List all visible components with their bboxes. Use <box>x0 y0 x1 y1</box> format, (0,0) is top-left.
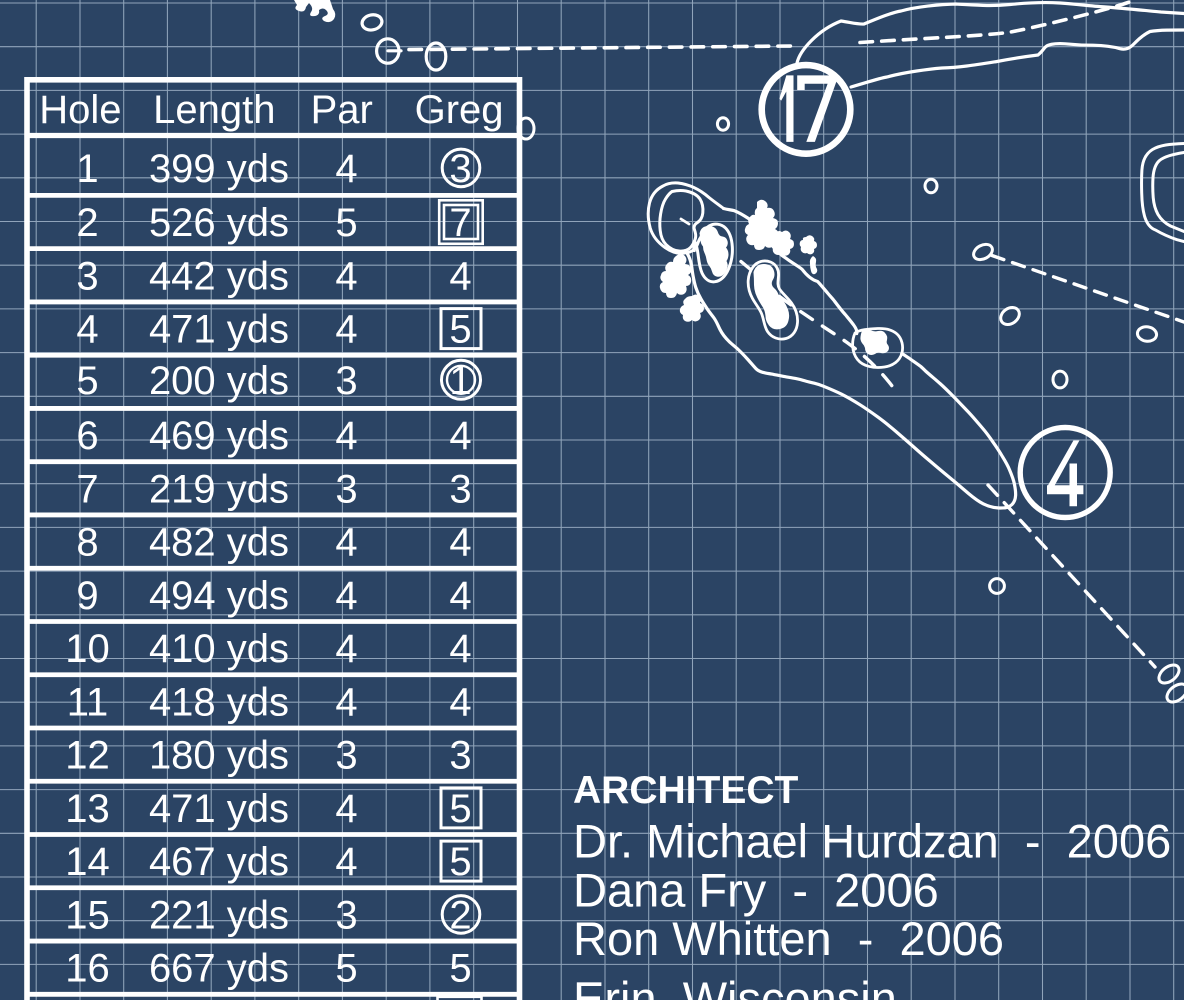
svg-text:5: 5 <box>449 308 471 352</box>
svg-text:Dr. Michael Hurdzan - 2006: Dr. Michael Hurdzan - 2006 <box>573 815 1171 868</box>
svg-text:4: 4 <box>335 574 357 618</box>
svg-text:Length: Length <box>153 88 275 132</box>
svg-text:219 yds: 219 yds <box>149 467 289 511</box>
svg-text:4: 4 <box>335 787 357 831</box>
svg-text:4: 4 <box>449 680 471 724</box>
svg-text:ARCHITECT: ARCHITECT <box>573 769 798 812</box>
svg-text:3: 3 <box>449 467 471 511</box>
svg-text:482 yds: 482 yds <box>149 521 289 565</box>
svg-text:3: 3 <box>335 359 357 403</box>
svg-text:526 yds: 526 yds <box>149 201 289 245</box>
svg-text:410 yds: 410 yds <box>149 627 289 671</box>
svg-text:4: 4 <box>335 840 357 884</box>
svg-text:2: 2 <box>76 201 98 245</box>
svg-text:442 yds: 442 yds <box>149 254 289 298</box>
svg-text:3: 3 <box>335 893 357 937</box>
svg-text:11: 11 <box>67 680 109 724</box>
svg-text:494 yds: 494 yds <box>149 574 289 618</box>
svg-text:14: 14 <box>65 840 110 884</box>
svg-text:8: 8 <box>76 521 98 565</box>
svg-text:221 yds: 221 yds <box>149 893 289 937</box>
svg-text:3: 3 <box>335 467 357 511</box>
svg-text:469 yds: 469 yds <box>149 414 289 458</box>
svg-text:Ron Whitten - 2006: Ron Whitten - 2006 <box>573 912 1004 965</box>
svg-text:200 yds: 200 yds <box>149 359 289 403</box>
svg-text:4: 4 <box>449 414 471 458</box>
svg-text:3: 3 <box>76 254 98 298</box>
svg-text:Greg: Greg <box>415 88 504 132</box>
svg-text:4: 4 <box>335 254 357 298</box>
svg-text:5: 5 <box>335 201 357 245</box>
svg-text:471 yds: 471 yds <box>149 787 289 831</box>
svg-text:5: 5 <box>335 947 357 991</box>
svg-text:Erin, Wisconsin: Erin, Wisconsin <box>573 972 897 1000</box>
svg-text:10: 10 <box>65 627 110 671</box>
svg-text:4: 4 <box>449 521 471 565</box>
svg-text:13: 13 <box>65 787 110 831</box>
svg-text:16: 16 <box>65 947 110 991</box>
svg-text:5: 5 <box>449 787 471 831</box>
svg-text:4: 4 <box>335 308 357 352</box>
svg-text:5: 5 <box>76 359 98 403</box>
svg-text:4: 4 <box>335 627 357 671</box>
svg-text:4: 4 <box>449 627 471 671</box>
svg-text:4: 4 <box>335 680 357 724</box>
svg-text:3: 3 <box>335 734 357 778</box>
svg-text:467 yds: 467 yds <box>149 840 289 884</box>
svg-text:15: 15 <box>65 893 110 937</box>
svg-text:399 yds: 399 yds <box>149 147 289 191</box>
svg-text:418 yds: 418 yds <box>149 680 289 724</box>
svg-text:7: 7 <box>76 467 98 511</box>
svg-text:4: 4 <box>335 147 357 191</box>
svg-text:Hole: Hole <box>39 88 121 132</box>
svg-text:4: 4 <box>335 521 357 565</box>
svg-text:9: 9 <box>76 574 98 618</box>
svg-text:180 yds: 180 yds <box>149 734 289 778</box>
svg-text:Dana Fry - 2006: Dana Fry - 2006 <box>573 864 939 917</box>
svg-text:6: 6 <box>76 414 98 458</box>
svg-text:471 yds: 471 yds <box>149 308 289 352</box>
svg-text:5: 5 <box>449 840 471 884</box>
svg-text:4: 4 <box>335 414 357 458</box>
svg-text:1: 1 <box>76 147 98 191</box>
svg-text:667 yds: 667 yds <box>149 947 289 991</box>
svg-text:5: 5 <box>449 947 471 991</box>
svg-text:Par: Par <box>311 88 373 132</box>
svg-text:12: 12 <box>65 734 110 778</box>
svg-text:4: 4 <box>76 308 98 352</box>
svg-text:3: 3 <box>449 734 471 778</box>
svg-text:4: 4 <box>449 574 471 618</box>
svg-text:4: 4 <box>449 254 471 298</box>
